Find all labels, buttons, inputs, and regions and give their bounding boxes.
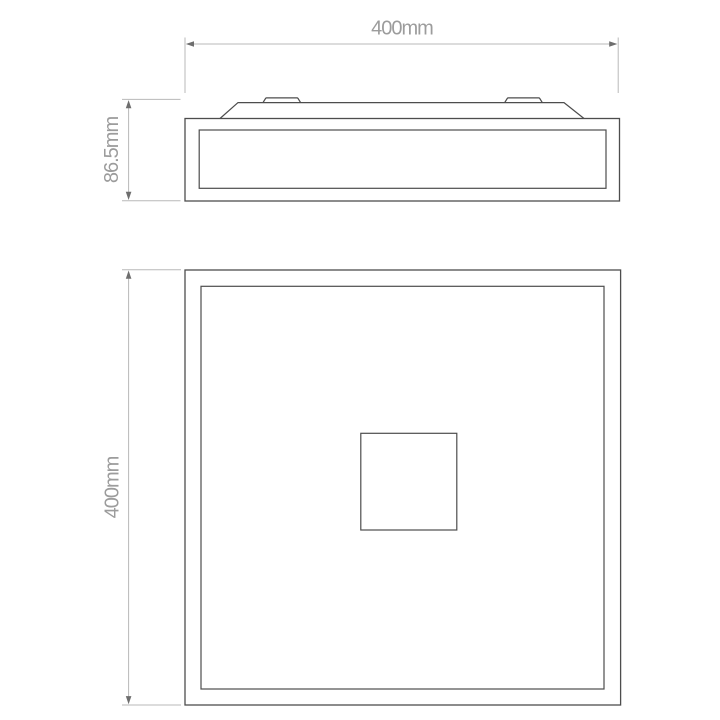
svg-text:400mm: 400mm [102, 456, 124, 518]
svg-text:86.5mm: 86.5mm [101, 117, 123, 184]
svg-text:400mm: 400mm [371, 18, 433, 40]
